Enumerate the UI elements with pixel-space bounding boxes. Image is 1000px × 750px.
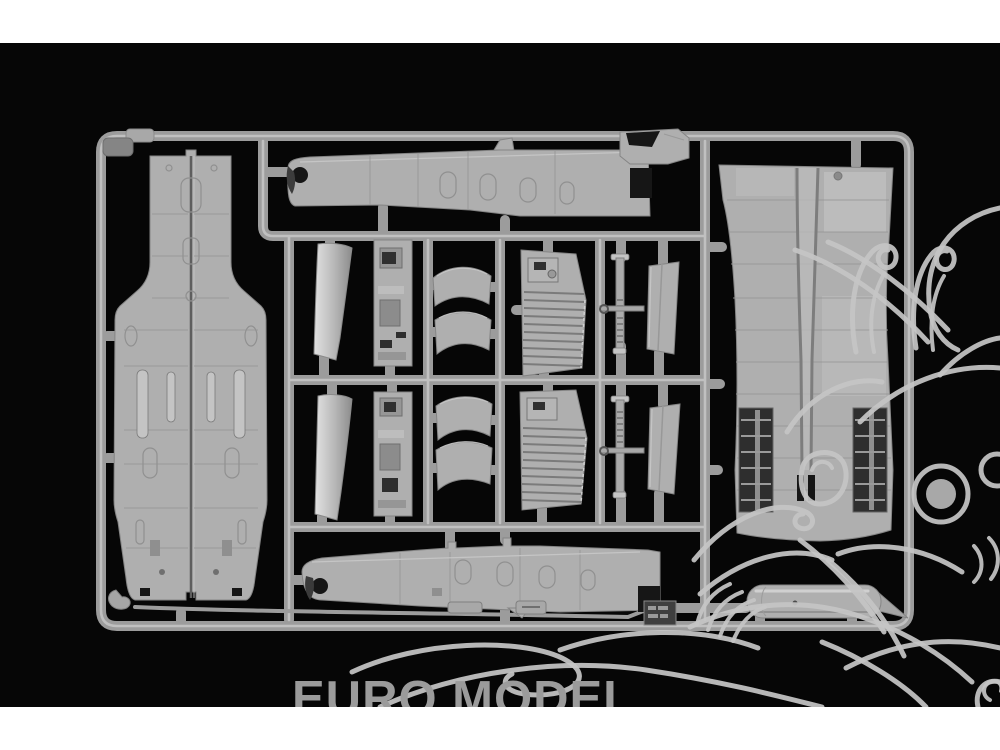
cockpit-hole: [312, 578, 328, 594]
part-ribbed-flap-2: [520, 390, 587, 510]
part-ribbed-flap-1: [521, 250, 586, 376]
watermark-text: EURO MODEL: [292, 675, 634, 707]
tank-gate: [879, 593, 908, 618]
wing-wheel-well-left: [739, 408, 773, 512]
part-intake-ramp-1: [314, 243, 352, 360]
part-gear-door-2b: [436, 442, 492, 490]
part-small-flap-2: [648, 404, 680, 494]
part-cockpit-sidewall-1: [374, 240, 412, 366]
part-cockpit-sidewall-2: [374, 392, 412, 516]
sprue-photo-svg: [0, 43, 1000, 707]
part-actuator-strut-2: [600, 396, 644, 498]
part-lower-wing: [719, 165, 893, 541]
part-label-plate: [644, 601, 676, 625]
part-small-flap-1: [647, 262, 679, 354]
part-gear-door-1b: [435, 312, 491, 354]
product-photo: EURO MODEL: [0, 43, 1000, 707]
part-intake-ramp-2: [315, 395, 352, 520]
part-fuselage-spine-top: [287, 138, 652, 216]
part-gear-door-1a: [433, 267, 491, 306]
mascot-eye-pupil: [926, 479, 956, 509]
part-fuselage-halves: [114, 150, 267, 600]
part-gear-door-2a: [436, 397, 492, 440]
part-air-intake: [620, 129, 689, 164]
part-actuator-strut-1: [600, 254, 644, 354]
